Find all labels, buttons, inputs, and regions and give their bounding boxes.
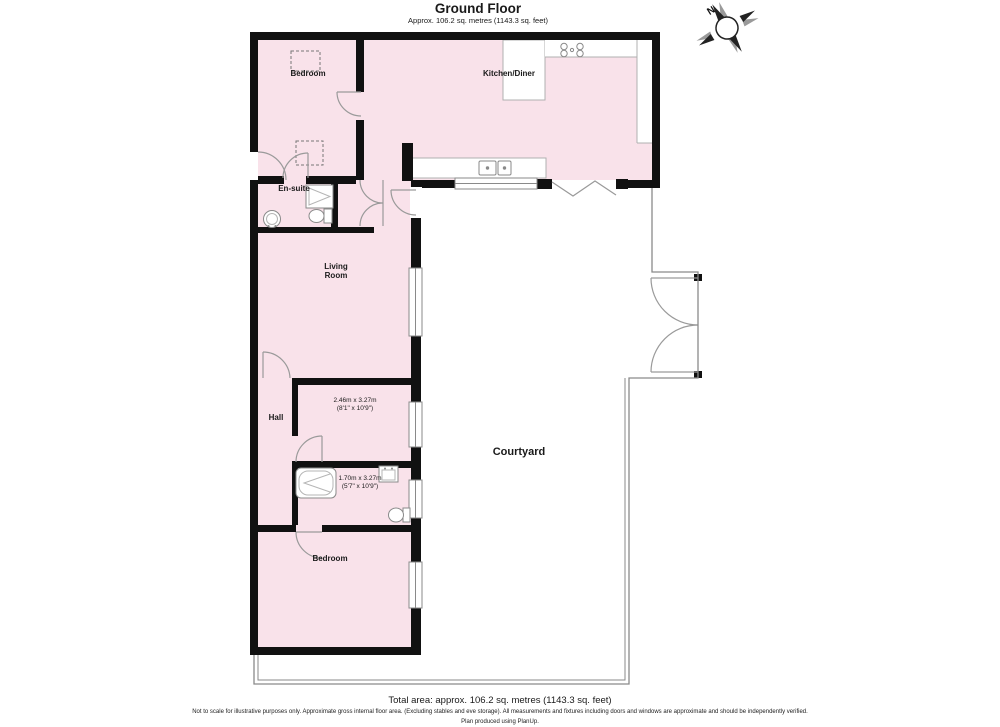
total-area-text: Total area: approx. 106.2 sq. metres (11… xyxy=(0,695,1000,706)
room-label-kitchen-diner: Kitchen/Diner xyxy=(459,69,559,78)
bathroom-dimensions: 1.70m x 3.27m (5'7" x 10'9") xyxy=(310,475,410,491)
kitchen-sink-counter xyxy=(405,158,546,178)
entry-door-gap xyxy=(410,187,422,218)
washbasin-icon xyxy=(264,211,281,228)
wall-hall-divider-a xyxy=(292,385,298,436)
room-label-bedroom-top: Bedroom xyxy=(268,69,348,78)
dimension-metric: 2.46m x 3.27m xyxy=(305,397,405,405)
dimension-imperial: (5'7" x 10'9") xyxy=(310,483,410,491)
wall-bedroom-divider-a xyxy=(356,40,364,92)
room-label-bedroom-bottom: Bedroom xyxy=(290,554,370,563)
wall-top xyxy=(250,32,660,40)
compass-rose-icon: N xyxy=(684,0,770,69)
toilet-icon xyxy=(309,209,332,223)
wall-entry-bottom xyxy=(338,227,374,233)
dimension-imperial: (8'1" x 10'9") xyxy=(305,405,405,413)
room-label-courtyard: Courtyard xyxy=(459,446,579,458)
kitchen-right-counter xyxy=(637,40,652,143)
room-label-living-room: Living Room xyxy=(317,262,355,280)
page-title: Ground Floor xyxy=(278,1,678,16)
wall-kitchen-stub xyxy=(402,143,413,181)
dimension-metric: 1.70m x 3.27m xyxy=(310,475,410,483)
wall-bedroom2-top-a xyxy=(258,525,296,532)
room-label-ensuite: En-suite xyxy=(254,184,334,193)
credit-text: Plan produced using PlanUp. xyxy=(0,718,1000,726)
room-label-hall: Hall xyxy=(246,413,306,422)
wall-ensuite-top-b xyxy=(306,176,356,184)
wall-ensuite-top-a xyxy=(258,176,284,184)
wall-living-bottom xyxy=(292,378,421,385)
disclaimer-text: Not to scale for illustrative purposes o… xyxy=(0,708,1000,716)
wall-left-upper xyxy=(250,32,258,152)
page-subtitle: Approx. 106.2 sq. metres (1143.3 sq. fee… xyxy=(278,16,678,25)
wall-kitchen-bottom-c xyxy=(616,179,628,189)
floorplan-drawing: N xyxy=(0,0,1000,727)
compass-north-label: N xyxy=(705,5,717,18)
wall-bottom xyxy=(250,647,420,655)
wall-ensuite-bottom xyxy=(258,227,338,233)
windows xyxy=(409,178,537,608)
kitchen-sink-icon xyxy=(479,161,511,175)
wall-kitchen-bottom-a xyxy=(421,180,456,188)
floorplan-page: N Ground Floor Approx. 106.2 sq. metres … xyxy=(0,0,1000,727)
wall-kitchen-bottom-b xyxy=(537,179,552,189)
wall-bathroom-top xyxy=(292,461,421,468)
wall-kitchen-right xyxy=(652,32,660,188)
bifold-door xyxy=(552,181,616,196)
wall-bedroom-divider-b xyxy=(356,120,364,180)
wall-kitchen-bottom-d xyxy=(628,180,652,188)
kitchen-top-counter xyxy=(545,40,637,57)
wall-bedroom2-top-b xyxy=(322,525,421,532)
toilet-icon xyxy=(389,508,411,522)
inner-room-dimensions: 2.46m x 3.27m (8'1" x 10'9") xyxy=(305,397,405,413)
courtyard-french-doors xyxy=(651,278,698,372)
